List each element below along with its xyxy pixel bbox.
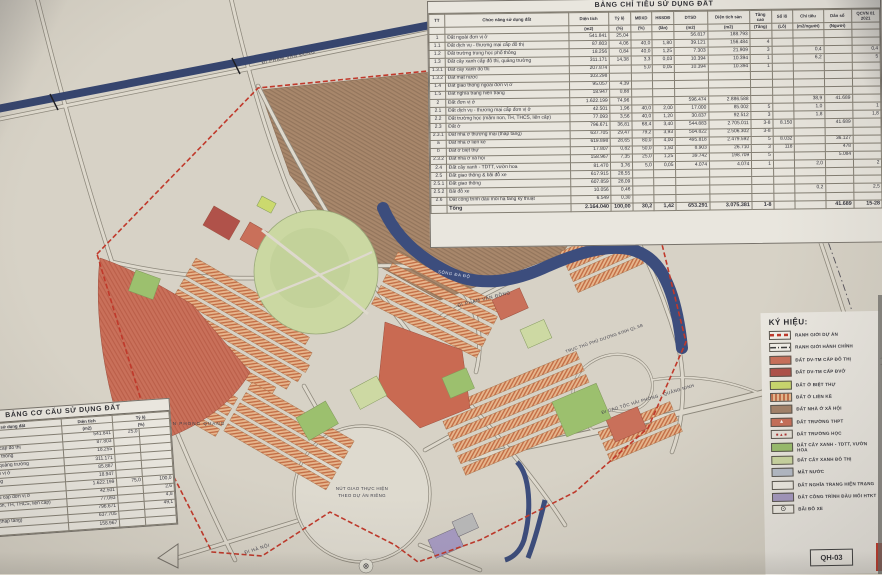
- table-cell: [772, 79, 794, 87]
- table-cell: [653, 88, 675, 96]
- table-cell: 68,4: [632, 121, 654, 129]
- table-cell: [795, 200, 825, 209]
- land-use-indicator-table: BẢNG CHỈ TIÊU SỬ DỤNG ĐẤT TTChức năng sử…: [427, 0, 882, 248]
- table-cell: Tỷ lệ: [609, 12, 631, 25]
- table-cell: 5: [751, 152, 773, 160]
- structure-table: Chức năng sử dụng đấtDiện tíchTỷ lệ(m2)(…: [0, 411, 177, 540]
- table-cell: 1,80: [652, 40, 674, 48]
- legend-item: ĐẤT CÂY XANH - TDTT, VƯỜN HOA: [771, 440, 879, 452]
- table-cell: [752, 185, 774, 193]
- table-cell: 1.5: [430, 91, 446, 99]
- table-cell: 1-8: [752, 201, 774, 210]
- table-cell: [772, 87, 794, 95]
- table-cell: [750, 87, 772, 95]
- table-cell: [751, 168, 773, 176]
- table-cell: 29,47: [610, 130, 632, 138]
- table-cell: 2.1: [430, 107, 446, 115]
- table-cell: 50,0: [632, 146, 654, 154]
- table-cell: 1,96: [610, 105, 632, 113]
- photo-edge: [878, 295, 882, 574]
- table-cell: 1,25: [654, 153, 676, 161]
- legend-swatch-orange-stripes-icon: [770, 393, 792, 402]
- table-cell: [631, 97, 653, 105]
- legend-label: ĐẤT CÂY XANH ĐÔ THỊ: [797, 456, 851, 462]
- table-cell: DTSD: [674, 11, 708, 24]
- table-cell: 1.3.1: [429, 67, 445, 75]
- table-cell: TT: [429, 14, 445, 27]
- legend-swatch-brown-icon: [770, 405, 792, 414]
- table-cell: 3: [751, 144, 773, 152]
- table-cell: [773, 128, 795, 136]
- table-cell: [632, 170, 654, 178]
- legend-label: ĐẤT CÔNG TRÌNH ĐẦU MỐI HTKT: [798, 493, 876, 500]
- table-cell: 3,3: [631, 56, 653, 64]
- table-cell: 653.291: [676, 202, 710, 211]
- table-cell: 5,0: [632, 162, 654, 170]
- table-cell: 28,65: [610, 138, 632, 146]
- table-cell: [773, 184, 795, 192]
- table-cell: Tổng: [447, 203, 571, 213]
- table-cell: [654, 178, 676, 186]
- map-legend: KÝ HIỆU: RANH GIỚI DỰ ÁNRANH GIỚI HÀNH C…: [760, 311, 882, 575]
- table-cell: [750, 30, 772, 38]
- sheet-code: QH-03: [820, 553, 842, 562]
- table-cell: [772, 71, 794, 79]
- legend-swatch-yellowgreen-icon: [770, 380, 792, 389]
- legend-label: ĐẤT CÂY XANH - TDTT, VƯỜN HOA: [797, 440, 879, 452]
- table-cell: 2.3: [430, 124, 446, 132]
- table-cell: [752, 177, 774, 185]
- table-cell: 1: [751, 160, 773, 168]
- table-cell: Tầng cao: [749, 10, 771, 23]
- table-cell: [773, 152, 795, 160]
- table-cell: [119, 517, 146, 527]
- table-cell: Số lô: [771, 10, 793, 23]
- table-cell: [631, 72, 653, 80]
- interchange-note-line2: THEO DỰ ÁN RIÊNG: [338, 493, 386, 498]
- legend-item: RANH GIỚI DỰ ÁN: [769, 329, 877, 340]
- legend-swatch-school-thpt-icon: ▲: [771, 417, 793, 426]
- table-cell: 1.1: [429, 42, 445, 50]
- table-cell: 8.150: [772, 119, 794, 127]
- legend-label: MẶT NƯỚC: [798, 469, 825, 475]
- table-cell: 3,76: [610, 162, 632, 170]
- table-cell: 28,55: [611, 170, 633, 178]
- table-cell: 30,2: [633, 202, 655, 211]
- legend-item: ĐẤT DV-TM CẤP ĐÔ THỊ: [769, 354, 877, 365]
- legend-item: RANH GIỚI HÀNH CHÍNH: [769, 341, 877, 352]
- table-cell: [771, 30, 793, 38]
- table-cell: 41.689: [825, 200, 853, 209]
- table-cell: [751, 95, 773, 103]
- table-cell: 28,09: [611, 178, 633, 186]
- legend-swatch-dashdot-line-icon: [769, 343, 791, 352]
- table-cell: 5: [751, 136, 773, 144]
- table-cell: 118: [773, 144, 795, 152]
- legend-item: ■▲■ĐẤT TRƯỜNG HỌC: [771, 428, 879, 439]
- table-cell: 40,0: [631, 40, 653, 48]
- legend-label: RANH GIỚI DỰ ÁN: [795, 332, 838, 338]
- legend-label: ĐẤT NHÀ Ở XÃ HỘI: [796, 406, 841, 412]
- table-cell: 36,81: [610, 121, 632, 129]
- table-cell: QCVN 01 2021: [851, 9, 879, 22]
- table-cell: [653, 97, 675, 105]
- table-cell: 4,39: [609, 81, 631, 89]
- table-cell: 2.5.1: [431, 181, 447, 189]
- table-cell: 80,0: [632, 137, 654, 145]
- table-cell: 40,0: [631, 48, 653, 56]
- table-cell: 2: [430, 99, 446, 107]
- table-cell: [631, 32, 653, 40]
- legend-label: ĐẤT Ở LIỀN KỀ: [796, 394, 832, 400]
- legend-swatch-darkred-icon: [770, 368, 792, 377]
- table-cell: a: [430, 140, 446, 148]
- table-cell: 2.5.2: [431, 189, 447, 197]
- legend-item: ĐẤT NGHĨA TRANG HIỆN TRẠNG: [772, 479, 880, 490]
- table-cell: 2.3.2: [430, 156, 446, 164]
- table-cell: [772, 63, 794, 71]
- table-cell: 1,20: [653, 113, 675, 121]
- legend-swatch-salmon-icon: [769, 355, 791, 364]
- table-cell: 3-8: [751, 120, 773, 128]
- table-cell: 2.4: [430, 164, 446, 172]
- table-cell: 4,00: [653, 137, 675, 145]
- table-cell: [609, 65, 631, 73]
- central-park-circle: [254, 210, 378, 334]
- table-cell: 4,06: [609, 40, 631, 48]
- legend-swatch-watergray-icon: [771, 468, 793, 477]
- table-cell: [772, 103, 794, 111]
- table-cell: 14,38: [609, 56, 631, 64]
- table-cell: [632, 186, 654, 194]
- legend-label: ĐẤT DV-TM CẤP ĐÔ THỊ: [795, 356, 851, 362]
- table-cell: 0,30: [611, 195, 633, 203]
- plan-sheet-photo: { "sheet": { "code": "QH-03" }, "top_tab…: [0, 0, 882, 574]
- legend-item: ĐẤT NHÀ Ở XÃ HỘI: [770, 403, 878, 414]
- table-cell: [773, 168, 795, 176]
- table-cell: 1.3: [429, 59, 445, 67]
- table-cell: Dân số: [823, 9, 851, 22]
- table-cell: 2,00: [653, 105, 675, 113]
- table-cell: [652, 32, 674, 40]
- table-cell: b: [430, 148, 446, 156]
- table-cell: [146, 515, 177, 525]
- table-cell: Chỉ tiêu: [793, 10, 823, 23]
- table-cell: [750, 71, 772, 79]
- table-cell: [773, 201, 795, 210]
- legend-label: BÃI ĐỖ XE: [798, 506, 823, 511]
- table-cell: 0,03: [652, 56, 674, 64]
- table-cell: [631, 81, 653, 89]
- legend-swatch-purple-icon: [772, 493, 794, 502]
- table-cell: 1,42: [654, 202, 676, 211]
- table-cell: 1,50: [654, 145, 676, 153]
- table-cell: 0,46: [611, 186, 633, 194]
- table-cell: 0,05: [653, 64, 675, 72]
- table-cell: [632, 178, 654, 186]
- table-cell: 15-28: [854, 200, 882, 209]
- legend-item: ĐẤT Ở BIỆT THỰ: [770, 378, 878, 389]
- table-cell: [772, 54, 794, 62]
- table-cell: [609, 73, 631, 81]
- table-cell: Diện tích sàn: [707, 11, 749, 24]
- table-cell: 74,96: [610, 97, 632, 105]
- table-cell: 0,84: [609, 48, 631, 56]
- legend-item: ▲ĐẤT TRƯỜNG THPT: [771, 416, 879, 427]
- table-cell: 5,0: [631, 64, 653, 72]
- table-cell: 3: [751, 112, 773, 120]
- table-cell: [772, 46, 794, 54]
- legend-item: ⊙BÃI ĐỖ XE: [772, 503, 880, 514]
- legend-items: RANH GIỚI DỰ ÁNRANH GIỚI HÀNH CHÍNHĐẤT D…: [769, 329, 881, 515]
- legend-label: ĐẤT NGHĨA TRANG HIỆN TRẠNG: [798, 481, 875, 487]
- table-cell: 5: [751, 103, 773, 111]
- legend-item: ĐẤT CÔNG TRÌNH ĐẦU MỐI HTKT: [772, 491, 880, 502]
- table-cell: 0,82: [610, 146, 632, 154]
- sheet-code-box: QH-03: [810, 549, 853, 567]
- table-cell: 40,0: [631, 105, 653, 113]
- table-cell: 2.164.040: [571, 203, 611, 212]
- table-cell: MĐXD: [630, 12, 652, 25]
- table-cell: 2.5: [431, 172, 447, 180]
- table-cell: 8.032: [773, 136, 795, 144]
- legend-swatch-school-icon: ■▲■: [771, 430, 793, 439]
- table-cell: Diện tích: [568, 12, 608, 25]
- legend-swatch-white-icon: [772, 480, 794, 489]
- table-cell: [631, 89, 653, 97]
- table-cell: 1: [750, 55, 772, 63]
- table-cell: [773, 160, 795, 168]
- table-cell: [653, 80, 675, 88]
- legend-label: ĐẤT TRƯỜNG THPT: [797, 418, 844, 424]
- legend-label: RANH GIỚI HÀNH CHÍNH: [795, 344, 853, 350]
- indicator-table: TTChức năng sử dụng đấtDiện tíchTỷ lệMĐX…: [428, 8, 882, 214]
- legend-item: MẶT NƯỚC: [771, 466, 879, 477]
- table-cell: [773, 193, 795, 201]
- table-cell: [654, 170, 676, 178]
- legend-label: ĐẤT TRƯỜNG HỌC: [797, 431, 842, 437]
- table-cell: 1: [429, 34, 445, 42]
- table-cell: 0,88: [610, 89, 632, 97]
- table-cell: 25,0: [632, 154, 654, 162]
- legend-item: ĐẤT Ở LIỀN KỀ: [770, 391, 878, 402]
- legend-title: KÝ HIỆU:: [769, 316, 877, 327]
- interchange-note-line1: NÚT GIAO THỰC HIỆN: [336, 486, 388, 491]
- legend-swatch-lightgreen-icon: [771, 455, 793, 464]
- table-cell: [772, 111, 794, 119]
- table-cell: 3: [750, 47, 772, 55]
- table-cell: [771, 38, 793, 46]
- table-cell: 0,05: [654, 162, 676, 170]
- table-cell: 3-8: [751, 128, 773, 136]
- table-cell: [431, 205, 447, 214]
- table-cell: 2.2: [430, 116, 446, 124]
- table-cell: 2.3.1: [430, 132, 446, 140]
- table-cell: 25,04: [609, 32, 631, 40]
- table-cell: 7,35: [610, 154, 632, 162]
- table-cell: 3,93: [653, 129, 675, 137]
- legend-item: ĐẤT CÂY XANH ĐÔ THỊ: [771, 454, 879, 465]
- table-cell: 1.2: [429, 51, 445, 59]
- table-cell: [654, 186, 676, 194]
- table-cell: 1: [750, 63, 772, 71]
- table-cell: 1,25: [652, 48, 674, 56]
- table-cell: 40,0: [631, 113, 653, 121]
- table-cell: [654, 194, 676, 202]
- table-cell: 100,00: [611, 203, 633, 212]
- table-cell: [750, 79, 772, 87]
- table-cell: 1.4: [430, 83, 446, 91]
- land-use-structure-table: BẢNG CƠ CẤU SỬ DỤNG ĐẤT Chức năng sử dụn…: [0, 398, 178, 541]
- table-cell: 3,40: [653, 121, 675, 129]
- legend-label: ĐẤT DV-TM CẤP ĐVỞ: [796, 369, 846, 375]
- table-cell: HSSDĐ: [652, 11, 674, 24]
- table-cell: 3.075.381: [710, 201, 752, 210]
- table-cell: 1.3.2: [429, 75, 445, 83]
- legend-swatch-parking-icon: ⊙: [772, 505, 794, 514]
- table-cell: 4: [750, 38, 772, 46]
- table-cell: [773, 176, 795, 184]
- legend-swatch-green-icon: [771, 443, 793, 452]
- table-cell: 3,56: [610, 113, 632, 121]
- table-cell: [752, 193, 774, 201]
- table-cell: [772, 95, 794, 103]
- table-cell: [653, 72, 675, 80]
- table-cell: 79,2: [632, 129, 654, 137]
- legend-item: ĐẤT DV-TM CẤP ĐVỞ: [770, 366, 878, 377]
- table-cell: 2.6: [431, 197, 447, 205]
- legend-label: ĐẤT Ở BIỆT THỰ: [796, 381, 836, 387]
- legend-swatch-dashed-red-line-icon: [769, 331, 791, 340]
- table-cell: [632, 194, 654, 202]
